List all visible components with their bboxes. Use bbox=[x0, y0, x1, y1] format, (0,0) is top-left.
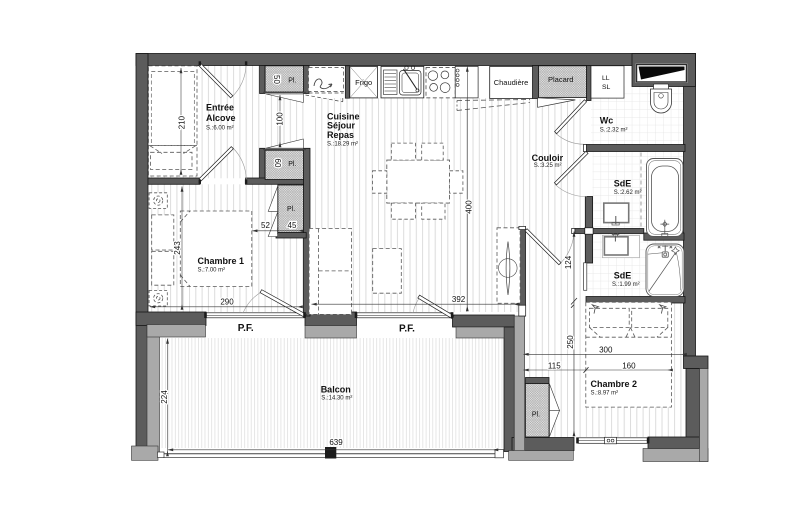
svg-text:SL: SL bbox=[602, 84, 611, 91]
svg-text:SdE: SdE bbox=[614, 178, 632, 188]
svg-text:Pl.: Pl. bbox=[288, 161, 296, 168]
svg-text:52: 52 bbox=[261, 221, 270, 230]
svg-text:210: 210 bbox=[178, 115, 187, 129]
svg-text:224: 224 bbox=[160, 390, 169, 404]
svg-text:Chaudière: Chaudière bbox=[494, 78, 529, 87]
svg-text:Pl.: Pl. bbox=[532, 412, 540, 419]
svg-text:Balcon: Balcon bbox=[321, 385, 351, 395]
svg-text:S.:18.29 m²: S.:18.29 m² bbox=[327, 142, 358, 148]
svg-text:60: 60 bbox=[273, 159, 282, 168]
svg-text:290: 290 bbox=[220, 298, 234, 307]
svg-text:300: 300 bbox=[599, 345, 613, 354]
svg-text:Placard: Placard bbox=[548, 75, 573, 84]
svg-text:LL: LL bbox=[602, 75, 610, 82]
svg-text:S.:3.25 m²: S.:3.25 m² bbox=[534, 163, 562, 169]
svg-text:Pl.: Pl. bbox=[287, 206, 295, 213]
svg-text:124: 124 bbox=[564, 255, 573, 269]
svg-text:250: 250 bbox=[566, 335, 575, 349]
svg-text:400: 400 bbox=[465, 200, 474, 214]
svg-text:S.:14.30 m²: S.:14.30 m² bbox=[321, 395, 352, 401]
svg-text:S.:8.97 m²: S.:8.97 m² bbox=[591, 390, 619, 396]
svg-text:Alcove: Alcove bbox=[206, 113, 236, 123]
svg-text:S.:1.99 m²: S.:1.99 m² bbox=[612, 282, 640, 288]
svg-text:Chambre 2: Chambre 2 bbox=[591, 379, 638, 389]
svg-text:S.:6.00 m²: S.:6.00 m² bbox=[206, 126, 234, 132]
svg-text:Couloir: Couloir bbox=[532, 153, 564, 163]
svg-text:243: 243 bbox=[173, 241, 182, 255]
svg-text:45: 45 bbox=[288, 221, 297, 230]
svg-text:Entrée: Entrée bbox=[206, 103, 234, 113]
svg-text:Chambre 1: Chambre 1 bbox=[198, 256, 245, 266]
svg-text:SdE: SdE bbox=[614, 271, 632, 281]
svg-text:50: 50 bbox=[272, 75, 281, 84]
svg-text:P.F.: P.F. bbox=[238, 323, 254, 334]
svg-text:Frigo: Frigo bbox=[355, 78, 372, 87]
svg-text:115: 115 bbox=[548, 362, 561, 371]
svg-text:100: 100 bbox=[276, 112, 285, 126]
svg-text:392: 392 bbox=[452, 295, 466, 304]
svg-text:639: 639 bbox=[329, 438, 343, 447]
svg-text:P.F.: P.F. bbox=[399, 324, 415, 335]
svg-text:Pl.: Pl. bbox=[288, 78, 296, 85]
svg-text:S.:7.00 m²: S.:7.00 m² bbox=[198, 268, 226, 274]
svg-text:S.:2.62 m²: S.:2.62 m² bbox=[614, 190, 642, 196]
svg-text:Wc: Wc bbox=[600, 116, 614, 126]
svg-text:S.:2.32 m²: S.:2.32 m² bbox=[600, 128, 628, 134]
svg-text:Repas: Repas bbox=[327, 130, 354, 140]
svg-text:160: 160 bbox=[622, 362, 636, 371]
